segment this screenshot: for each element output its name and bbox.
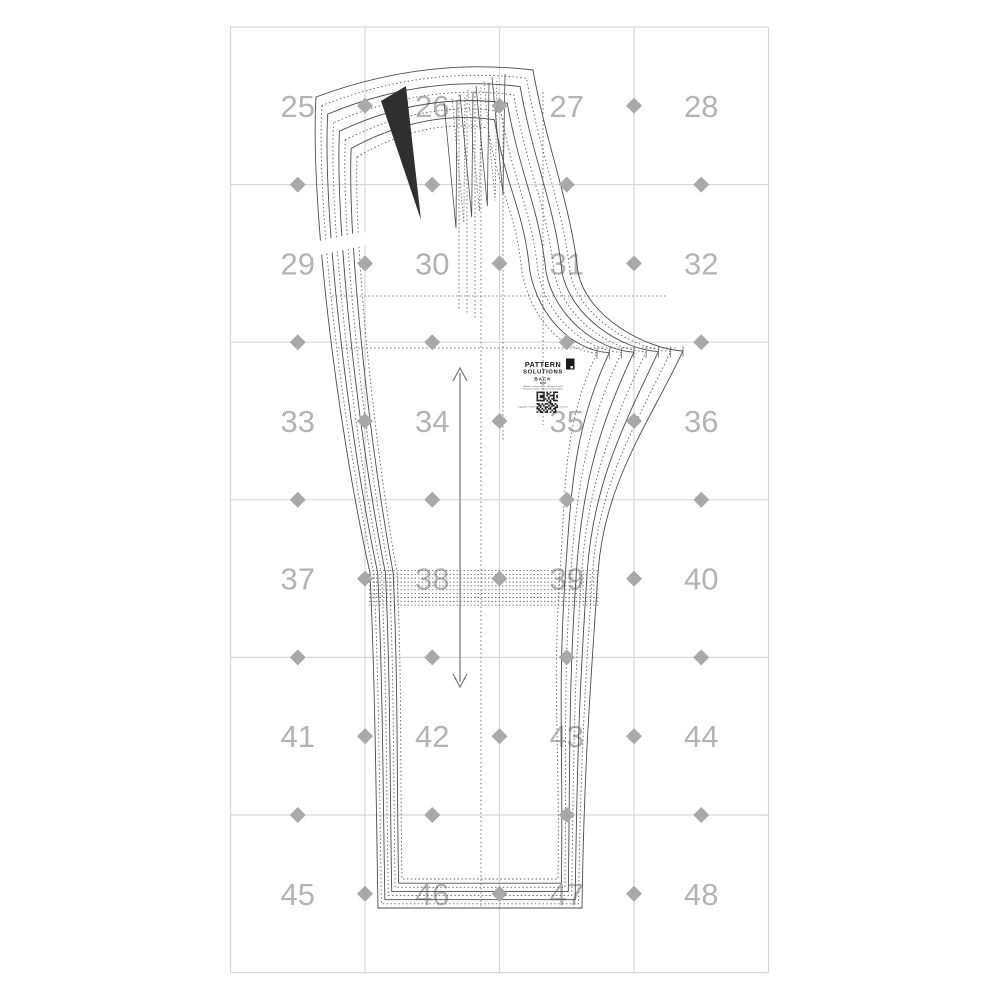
alignment-diamond-icon <box>290 177 306 193</box>
page-number: 32 <box>684 246 718 281</box>
alignment-diamond-icon <box>693 807 709 823</box>
grainline-double-arrow-icon <box>453 368 467 687</box>
brand-name-line2: SOLUTIONS <box>523 370 563 376</box>
page-number: 37 <box>281 562 315 597</box>
alignment-diamond-icon <box>424 177 440 193</box>
alignment-diamond-icon <box>492 255 508 271</box>
page-number: 46 <box>415 877 449 912</box>
style-name: PANT <box>540 382 547 385</box>
page-number: 33 <box>281 404 315 439</box>
alignment-diamond-icon <box>626 886 642 902</box>
alignment-diamond-icon <box>626 571 642 587</box>
alignment-diamond-icon <box>424 492 440 508</box>
alignment-diamond-icon <box>492 571 508 587</box>
back-dart-right <box>468 87 481 212</box>
back-dart-right <box>460 91 473 217</box>
copyright-line: Copyright © 2023 Pattern Solutions. All … <box>518 406 569 409</box>
alignment-diamond-icon <box>626 98 642 114</box>
page-number: 45 <box>281 877 315 912</box>
piece-name: BACK <box>534 377 551 382</box>
page-number: 44 <box>684 719 718 754</box>
page-number: 48 <box>684 877 718 912</box>
page-number: 39 <box>550 562 584 597</box>
alignment-diamond-icon <box>357 98 373 114</box>
page-number: 28 <box>684 89 718 124</box>
page-number: 30 <box>415 246 449 281</box>
page-number: 47 <box>550 877 584 912</box>
alignment-diamond-icon <box>559 492 575 508</box>
alignment-diamond-icon <box>559 334 575 350</box>
alignment-diamond-icon <box>559 177 575 193</box>
alignment-diamond-icon <box>290 334 306 350</box>
alignment-diamond-icon <box>626 255 642 271</box>
size-outline <box>327 84 658 900</box>
page-number: 29 <box>281 246 315 281</box>
page-number: 40 <box>684 562 718 597</box>
alignment-diamond-icon <box>290 492 306 508</box>
alignment-diamond-icon <box>357 255 373 271</box>
alignment-diamond-icon <box>693 492 709 508</box>
alignment-diamond-icon <box>693 334 709 350</box>
alignment-diamond-icon <box>492 413 508 429</box>
size-outline <box>321 75 671 904</box>
alignment-diamond-icon <box>290 649 306 665</box>
page-number: 25 <box>281 89 315 124</box>
alignment-diamond-icon <box>290 807 306 823</box>
description-line2: For woven fabrics without stretch (cotto… <box>523 387 562 390</box>
page-number: 34 <box>415 404 449 439</box>
alignment-diamond-icon <box>492 728 508 744</box>
alignment-diamond-icon <box>693 177 709 193</box>
brand-name-line1: PATTERN <box>525 360 561 369</box>
page-grid <box>231 27 769 973</box>
page-number: 42 <box>415 719 449 754</box>
page-margin-gap <box>308 231 368 257</box>
alignment-diamond-icon <box>357 886 373 902</box>
pattern-sheet: 2526272829303132333435363738394041424344… <box>0 0 1000 1000</box>
size-outline <box>345 109 622 887</box>
alignment-diamond-icon <box>626 728 642 744</box>
page-number: 36 <box>684 404 718 439</box>
qr-code-icon <box>537 392 558 413</box>
page-number: 38 <box>415 562 449 597</box>
size-outline <box>357 126 597 879</box>
alignment-diamond-icon <box>424 807 440 823</box>
description-line1: Women's trouser block - US sizes 0 to 18 <box>523 385 563 388</box>
back-dart-right <box>444 100 457 228</box>
brand-logo-square-icon <box>566 359 575 370</box>
alignment-diamond-icon <box>693 649 709 665</box>
page-number: 27 <box>550 89 584 124</box>
pattern-sheet-canvas: 2526272829303132333435363738394041424344… <box>0 0 1000 1000</box>
page-number: 41 <box>281 719 315 754</box>
alignment-diamond-icon <box>357 728 373 744</box>
alignment-diamond-icon <box>424 649 440 665</box>
